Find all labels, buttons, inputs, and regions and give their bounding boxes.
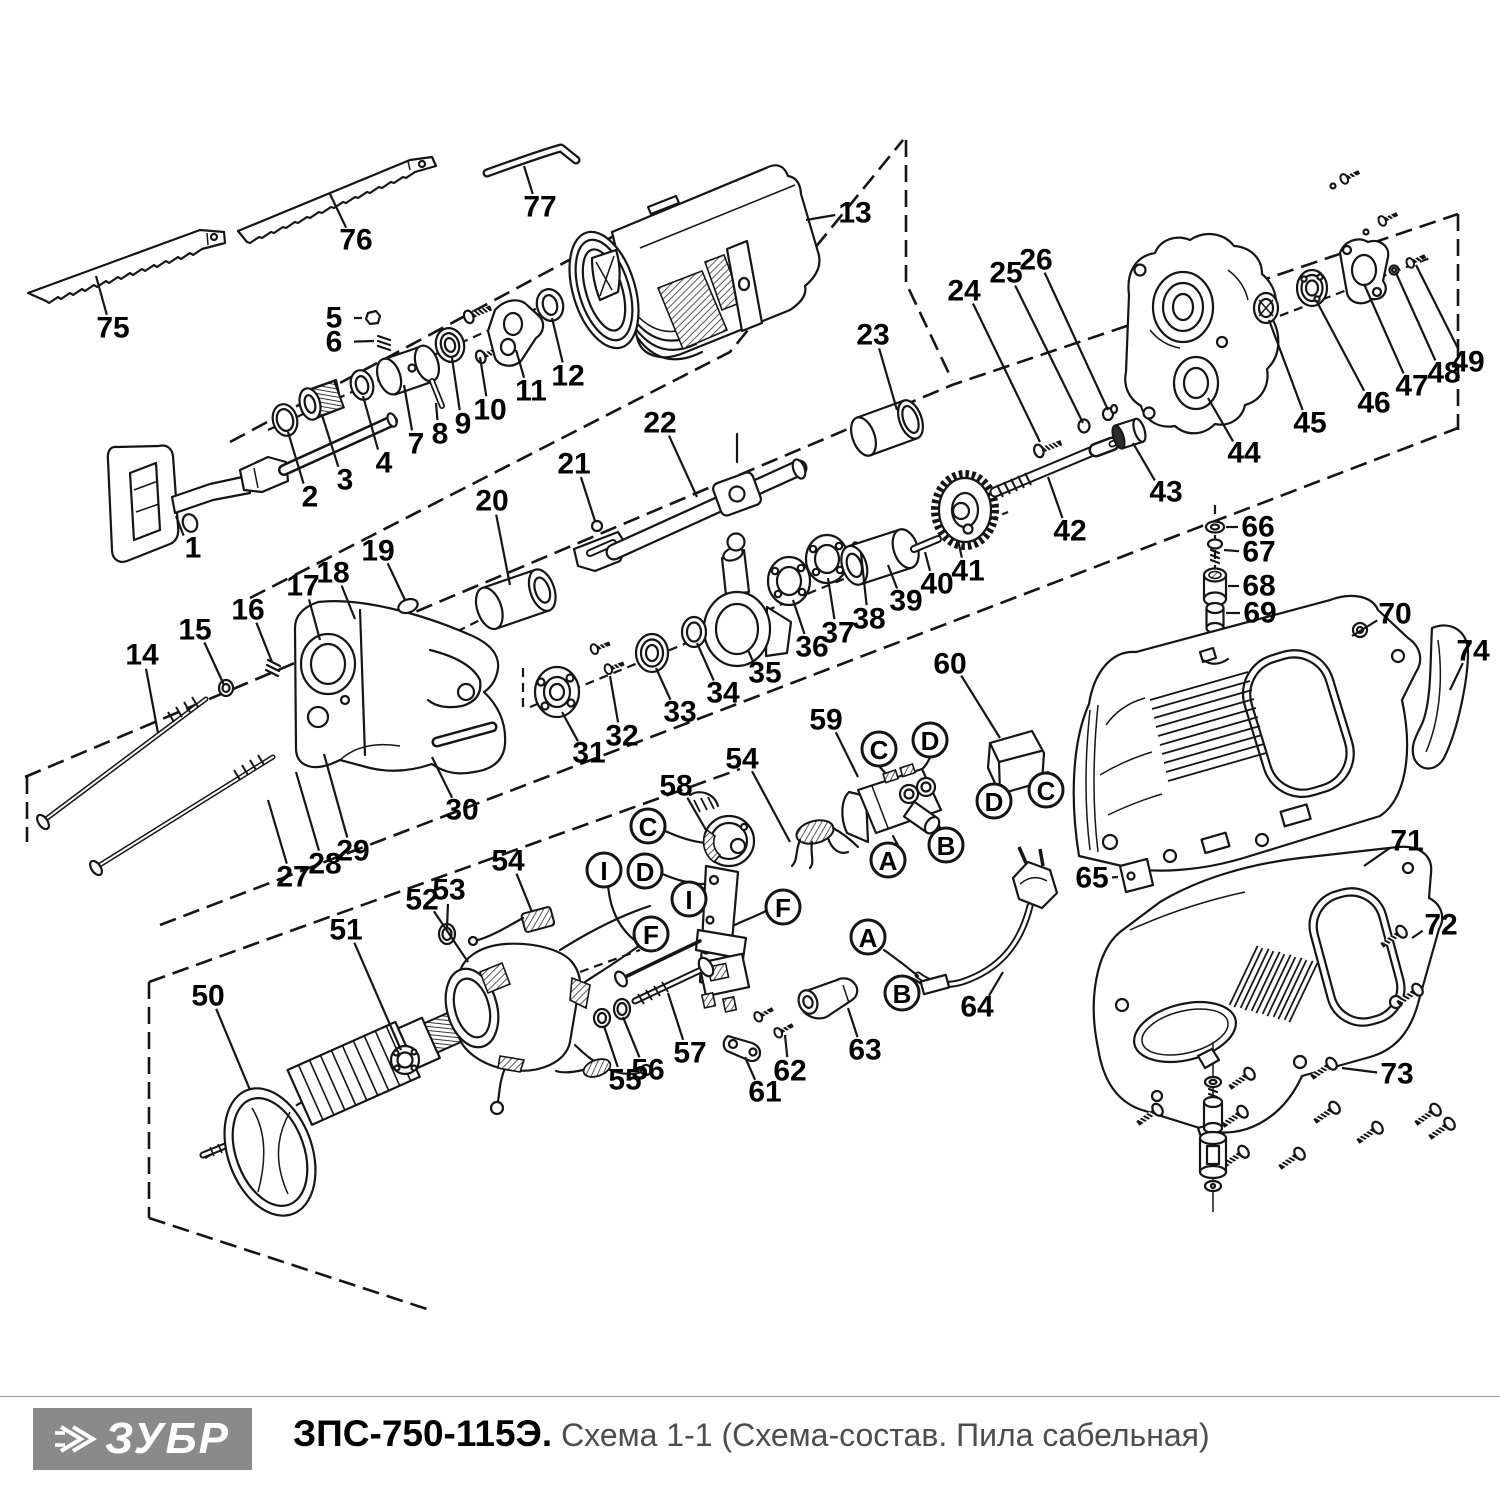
part-label-35: 35 [748, 657, 781, 690]
wire-marker-C: C [1029, 773, 1063, 807]
footer: ЗУБР ЗПС-750-115Э. Схема 1-1 (Схема-сост… [0, 1396, 1500, 1500]
part-label-49: 49 [1451, 346, 1484, 379]
model-code: ЗПС-750-115Э. [293, 1413, 552, 1454]
part-31-bearing [535, 667, 579, 717]
part-label-46: 46 [1357, 387, 1390, 420]
part-label-27: 27 [276, 861, 309, 894]
part-label-51: 51 [329, 914, 362, 947]
part-label-23: 23 [856, 319, 889, 352]
part-63-cord-sleeve [795, 978, 857, 1018]
part-label-77: 77 [523, 191, 556, 224]
wire-marker-I: I [587, 853, 621, 887]
part-label-11: 11 [515, 375, 547, 408]
part-label-3: 3 [337, 464, 354, 497]
part-4-circlip [347, 368, 376, 403]
leader-line-57 [668, 993, 683, 1040]
part-76-saw-blade [238, 157, 436, 243]
part-label-14: 14 [125, 639, 159, 672]
part-label-72: 72 [1424, 909, 1457, 942]
part-label-47: 47 [1395, 370, 1428, 403]
part-label-63: 63 [848, 1034, 881, 1067]
part-26-rings [1103, 405, 1117, 420]
part-24-screw [1032, 437, 1063, 459]
part-23-bushing [846, 397, 927, 459]
wire-marker-C: C [862, 732, 896, 766]
part-label-33: 33 [663, 696, 696, 729]
leader-line-23 [879, 348, 897, 410]
part-label-56: 56 [631, 1054, 664, 1087]
part-39-drive-drum [837, 526, 924, 588]
leader-line-42 [1048, 477, 1062, 518]
svg-text:F: F [775, 893, 791, 923]
leader-line-67 [1224, 550, 1239, 551]
part-14-rods [35, 697, 273, 877]
schema-subtitle: Схема 1-1 (Схема-состав. Пила сабельная) [552, 1417, 1209, 1453]
part-label-4: 4 [376, 447, 393, 480]
part-label-22: 22 [643, 407, 676, 440]
wire-marker-D: D [977, 784, 1011, 818]
part-51-bearing [391, 1046, 419, 1074]
part-70-housing-inner-half [1074, 596, 1420, 871]
svg-text:C: C [870, 735, 889, 765]
leader-line-27 [268, 800, 287, 864]
part-label-43: 43 [1149, 476, 1182, 509]
svg-text:D: D [921, 726, 940, 756]
part-label-73: 73 [1380, 1058, 1413, 1091]
leader-line-53 [447, 904, 448, 928]
part-2-ring [269, 401, 300, 438]
leader-line-54 [517, 874, 532, 912]
leader-line-48 [1396, 273, 1435, 360]
leader-line-50 [216, 1009, 250, 1090]
part-label-42: 42 [1053, 515, 1086, 548]
wire-marker-D: D [628, 854, 662, 888]
part-22-plunger-rod [574, 434, 808, 571]
wire-marker-B: B [885, 976, 919, 1010]
part-label-64: 64 [960, 991, 994, 1024]
wire-marker-I: I [672, 882, 706, 916]
part-1-shoe [108, 412, 399, 562]
leader-line-19 [388, 563, 405, 600]
part-label-70: 70 [1378, 598, 1411, 631]
exploded-parts-diagram: 1234567891011121314151617181920212223242… [0, 0, 1500, 1396]
page: 1234567891011121314151617181920212223242… [0, 0, 1500, 1500]
svg-text:B: B [937, 831, 956, 861]
part-42-spindle-shaft [995, 437, 1130, 497]
schema-title: ЗПС-750-115Э. Схема 1-1 (Схема-состав. П… [293, 1413, 1210, 1455]
part-label-18: 18 [316, 557, 349, 590]
svg-text:C: C [1037, 776, 1056, 806]
part-label-71: 71 [1390, 825, 1423, 858]
part-label-58: 58 [659, 770, 692, 803]
part-label-17: 17 [286, 570, 319, 603]
wire-marker-F: F [634, 917, 668, 951]
part-15-ring [219, 680, 233, 696]
part-label-59: 59 [809, 704, 842, 737]
part-label-1: 1 [185, 532, 202, 565]
part-41-gear [935, 474, 995, 546]
part-44-gear-end-housing [1125, 234, 1278, 433]
part-label-75: 75 [96, 312, 129, 345]
part-50-armature [203, 990, 492, 1229]
leader-line-54 [752, 771, 790, 842]
part-75-saw-blade [28, 230, 225, 303]
leader-line-21 [581, 477, 595, 521]
part-label-12: 12 [551, 360, 584, 393]
part-label-19: 19 [361, 535, 394, 568]
part-label-30: 30 [445, 794, 478, 827]
brand-arrow-icon [55, 1417, 97, 1461]
part-3-clamp-nut [296, 380, 344, 422]
brand-name: ЗУБР [105, 1414, 230, 1464]
svg-text:I: I [600, 856, 607, 886]
part-56-o-ring [614, 999, 630, 1019]
part-67-spring-washer [1208, 540, 1222, 564]
wire-marker-A: A [871, 843, 905, 877]
part-46-bearing [1297, 270, 1327, 306]
part-label-76: 76 [339, 224, 372, 257]
leader-line-59 [836, 732, 858, 777]
svg-text:F: F [643, 920, 659, 950]
part-61-clamp-link [724, 1036, 760, 1061]
part-77-hex-key [487, 148, 576, 173]
part-label-16: 16 [231, 594, 264, 627]
leader-line-26 [1045, 273, 1108, 410]
part-label-10: 10 [473, 394, 506, 427]
part-label-57: 57 [673, 1037, 706, 1070]
part-label-6: 6 [326, 326, 343, 359]
part-label-24: 24 [947, 275, 981, 308]
part-36-bearing [768, 557, 810, 605]
part-8-pin [432, 381, 442, 406]
part-label-54: 54 [725, 743, 759, 776]
part-47-gasket [1340, 239, 1388, 303]
leader-line-9 [452, 358, 460, 410]
part-label-9: 9 [455, 408, 472, 441]
part-label-29: 29 [336, 835, 369, 868]
brand-logo: ЗУБР [33, 1408, 252, 1470]
leader-line-15 [204, 642, 224, 685]
part-label-38: 38 [852, 603, 885, 636]
svg-text:A: A [879, 846, 898, 876]
part-label-40: 40 [920, 568, 953, 601]
svg-text:B: B [893, 979, 912, 1009]
leader-line-49 [1416, 265, 1459, 350]
leader-line-29 [324, 754, 347, 838]
leader-line-46 [1316, 300, 1364, 391]
part-25-ring [1079, 420, 1090, 433]
leader-line-13 [806, 215, 835, 220]
part-top-screws [1331, 167, 1400, 234]
part-40-pin [914, 539, 938, 549]
wire-marker-A: A [851, 920, 885, 954]
part-71-housing-outer-half [1094, 847, 1442, 1140]
part-64-power-cord [884, 847, 1057, 994]
part-label-13: 13 [838, 197, 871, 230]
part-55-washer [594, 1009, 610, 1027]
part-5-set-nut [366, 311, 380, 324]
leader-line-56 [623, 1017, 639, 1057]
part-62-screws [753, 1005, 795, 1039]
part-45-seal [1254, 293, 1278, 323]
part-label-69: 69 [1243, 597, 1276, 630]
part-20-sleeve [471, 566, 561, 633]
wire-marker-B: B [929, 828, 963, 862]
part-label-74: 74 [1456, 635, 1490, 668]
part-label-15: 15 [178, 614, 211, 647]
part-label-65: 65 [1075, 862, 1108, 895]
part-43-cam [1110, 417, 1148, 450]
wire-marker-C: C [631, 809, 665, 843]
part-6-spring [378, 336, 390, 350]
svg-text:D: D [636, 857, 655, 887]
part-label-32: 32 [605, 720, 638, 753]
part-13-motor-housing [557, 165, 820, 359]
part-label-26: 26 [1019, 244, 1052, 277]
leader-line-25 [1015, 285, 1083, 423]
part-label-41: 41 [951, 555, 984, 588]
part-66-cap [1206, 522, 1224, 533]
leader-line-60 [961, 676, 1000, 738]
leader-line-22 [669, 436, 697, 497]
leader-line-32 [610, 676, 618, 722]
part-label-60: 60 [933, 648, 966, 681]
svg-text:C: C [639, 812, 658, 842]
part-label-21: 21 [557, 448, 590, 481]
leader-line-6 [354, 341, 374, 342]
part-label-2: 2 [302, 481, 319, 514]
leader-line-20 [496, 515, 510, 585]
part-label-25: 25 [989, 257, 1022, 290]
part-65-plate [1120, 859, 1153, 892]
svg-text:I: I [685, 885, 692, 915]
part-label-7: 7 [408, 428, 425, 461]
part-label-8: 8 [432, 418, 449, 451]
leader-line-45 [1269, 320, 1303, 410]
part-68-roller [1204, 569, 1226, 606]
part-label-53: 53 [432, 874, 465, 907]
part-33-bearing [636, 634, 668, 672]
part-label-44: 44 [1227, 437, 1261, 470]
leader-line-73 [1342, 1068, 1377, 1072]
svg-text:A: A [859, 923, 878, 953]
part-label-50: 50 [191, 980, 224, 1013]
part-label-20: 20 [475, 485, 508, 518]
part-label-31: 31 [572, 737, 605, 770]
wire-marker-F: F [766, 890, 800, 924]
part-label-62: 62 [773, 1055, 806, 1088]
part-21-ball [592, 521, 602, 531]
leader-line-12 [552, 318, 563, 363]
part-label-54: 54 [491, 845, 525, 878]
part-label-34: 34 [706, 677, 740, 710]
leader-line-36 [793, 600, 805, 634]
leader-line-37 [828, 578, 834, 619]
part-54-brush-left [469, 906, 555, 945]
part-label-39: 39 [889, 585, 922, 618]
leader-line-47 [1364, 284, 1403, 373]
part-label-45: 45 [1293, 407, 1326, 440]
leader-line-7 [404, 385, 412, 430]
part-label-37: 37 [821, 617, 854, 650]
wire-marker-D: D [913, 723, 947, 757]
svg-text:D: D [985, 787, 1004, 817]
leader-line-24 [973, 304, 1040, 442]
leader-line-28 [296, 772, 319, 851]
leader-line-16 [256, 623, 272, 662]
part-label-67: 67 [1242, 536, 1275, 569]
part-34-ring [682, 617, 706, 647]
